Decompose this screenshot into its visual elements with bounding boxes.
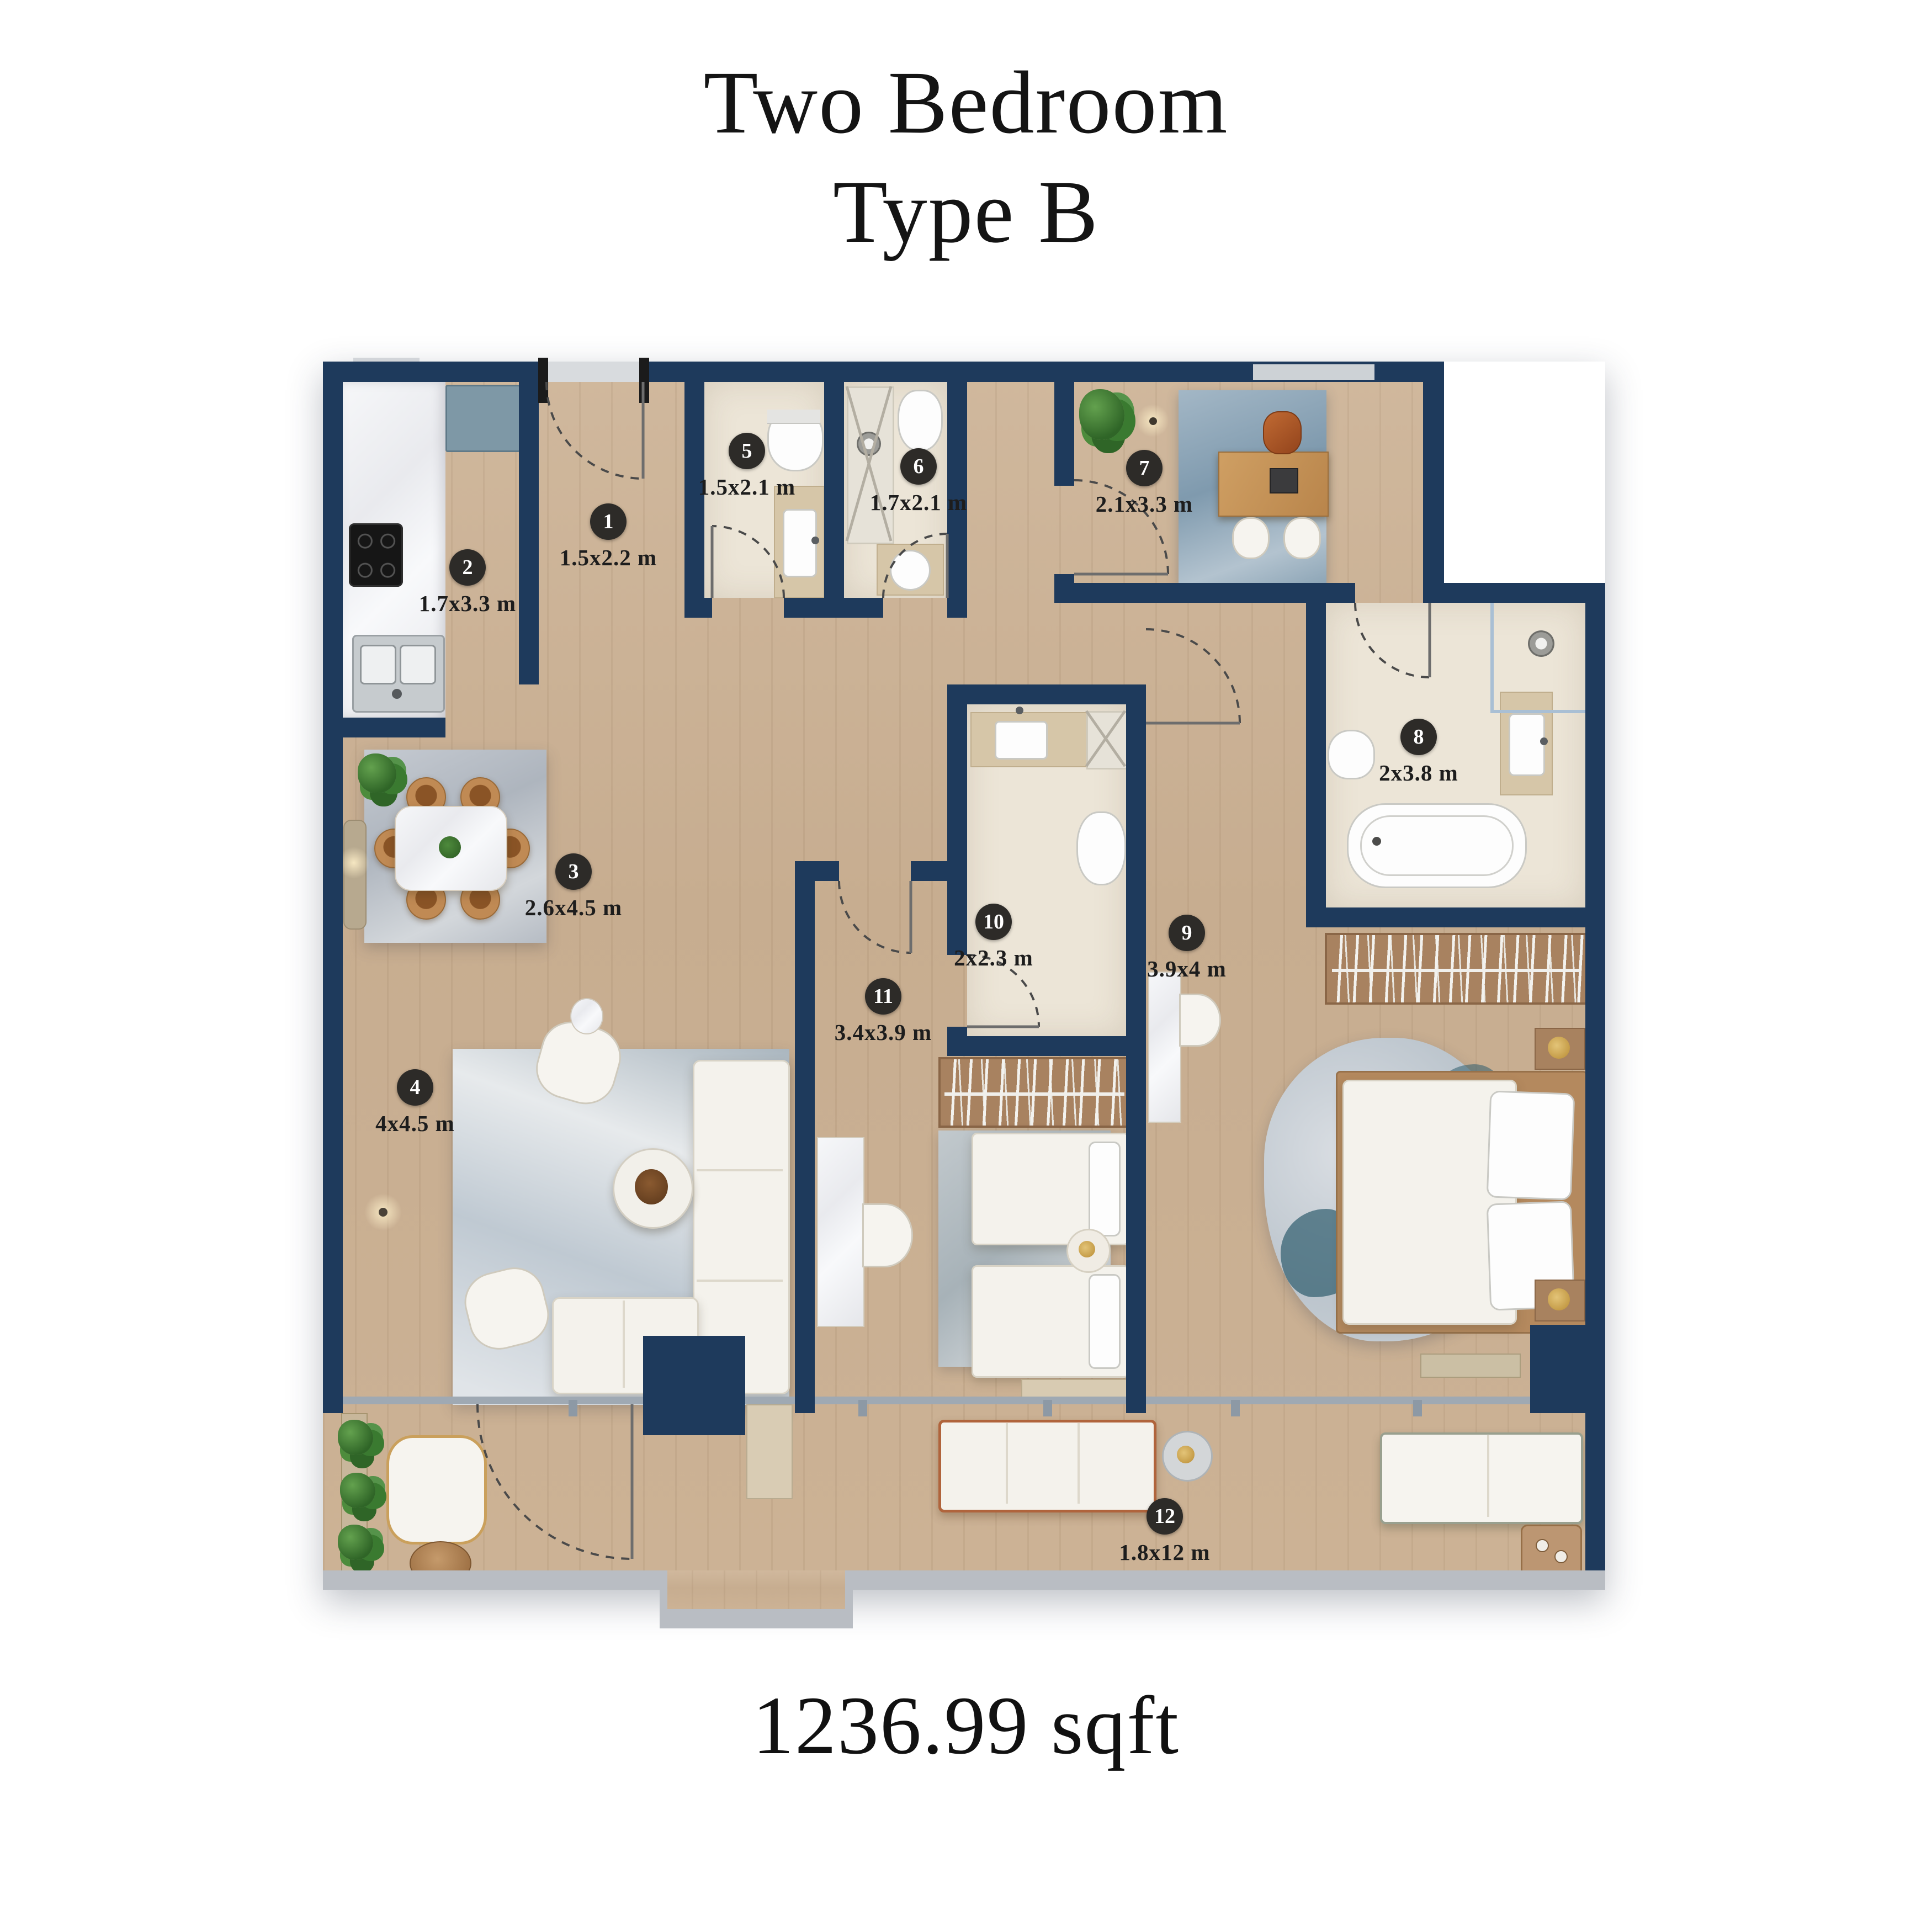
- room-label-8: 82x3.8 m: [1303, 719, 1535, 786]
- pillow: [1487, 1090, 1575, 1200]
- sofa-seam: [697, 1169, 783, 1171]
- room-label-4: 44x4.5 m: [299, 1069, 531, 1137]
- nightstand-tray: [1079, 1241, 1095, 1257]
- room-number: 12: [1147, 1498, 1183, 1535]
- room-dimensions: 3.4x3.9 m: [767, 1019, 999, 1045]
- parapet-joint: [845, 1570, 853, 1609]
- wall-balcony-right: [1585, 1405, 1605, 1570]
- wardrobe-master: [1325, 933, 1588, 1005]
- room-number: 2: [449, 549, 486, 586]
- room-label-12: 121.8x12 m: [1049, 1498, 1281, 1565]
- wall-balcony-block: [643, 1336, 745, 1435]
- bath10-faucet: [1016, 707, 1023, 714]
- wall-study-left: [1054, 574, 1074, 603]
- sofa-seam: [623, 1301, 625, 1388]
- side-table: [570, 998, 603, 1034]
- master-console: [1148, 972, 1181, 1123]
- sofa-seam: [1078, 1423, 1080, 1504]
- balcony-plant: [338, 1420, 373, 1455]
- shower-glass-h: [1490, 710, 1585, 713]
- wall-bath-bottom: [947, 598, 967, 618]
- balcony-parapet-notch: [660, 1609, 853, 1628]
- room-dimensions: 2x2.3 m: [878, 944, 1110, 971]
- window-mullion: [1043, 1400, 1052, 1416]
- room-dimensions: 1.7x3.3 m: [352, 590, 583, 617]
- floorplan-page: Two Bedroom Type B 1236.99 sqft: [0, 0, 1932, 1932]
- pillow: [1089, 1274, 1121, 1369]
- room-number: 1: [590, 503, 627, 540]
- tea-cup: [1554, 1550, 1568, 1563]
- fridge: [445, 385, 521, 452]
- guest-chair: [1283, 517, 1321, 559]
- room-dimensions: 2.6x4.5 m: [458, 894, 689, 921]
- room-number: 8: [1400, 719, 1437, 755]
- balcony-armchair: [386, 1435, 487, 1544]
- balcony-plant: [338, 1525, 373, 1560]
- dining-plant: [358, 753, 396, 793]
- bathtub-drain: [1372, 837, 1381, 846]
- exterior-cutout: [1444, 362, 1605, 583]
- window-mullion: [569, 1400, 577, 1416]
- room-number: 4: [397, 1069, 433, 1106]
- bath5-faucet: [811, 537, 819, 544]
- wall-study-right: [1423, 382, 1444, 603]
- door-frame-stub: [639, 358, 649, 403]
- bath10-basin: [995, 721, 1048, 760]
- toilet: [1076, 811, 1126, 885]
- balcony-window-track: [343, 1397, 1585, 1404]
- shower-head: [1528, 630, 1554, 657]
- desk-chair-leather: [1263, 411, 1302, 454]
- room-label-6: 61.7x2.1 m: [803, 448, 1034, 516]
- window-mullion: [1413, 1400, 1422, 1416]
- room-label-11: 113.4x3.9 m: [767, 978, 999, 1045]
- daybed-seam: [1487, 1435, 1489, 1517]
- wall-bedroom2-top: [795, 861, 839, 881]
- room-label-3: 32.6x4.5 m: [458, 853, 689, 921]
- floor-plan: 11.5x2.2 m21.7x3.3 m32.6x4.5 m44x4.5 m51…: [0, 0, 1932, 1932]
- toilet-tank: [767, 410, 820, 424]
- room-dimensions: 2x3.8 m: [1303, 760, 1535, 786]
- wall-bath-bottom: [684, 598, 712, 618]
- window-mullion: [1231, 1400, 1240, 1416]
- wall-bath8-bottom: [1306, 907, 1605, 927]
- balcony-parapet: [323, 1570, 660, 1590]
- balcony-notch-floor: [660, 1570, 853, 1609]
- room-number: 7: [1126, 450, 1163, 486]
- balcony-plant: [340, 1473, 375, 1508]
- room-label-7: 72.1x3.3 m: [1028, 450, 1260, 517]
- bed-bench: [1420, 1354, 1521, 1378]
- study-plant: [1079, 389, 1124, 440]
- wall-right: [1585, 603, 1605, 1413]
- room-dimensions: 4x4.5 m: [299, 1110, 531, 1137]
- room-dimensions: 2.1x3.3 m: [1028, 491, 1260, 517]
- wall-bath10-top: [947, 684, 1126, 704]
- room-number: 6: [900, 448, 937, 485]
- wall-living-bedroom: [795, 861, 815, 1413]
- bath5-basin: [783, 509, 817, 577]
- toilet: [898, 390, 943, 452]
- balcony-door-leaf: [746, 1404, 793, 1499]
- guest-chair: [1232, 517, 1270, 559]
- door-frame-stub: [538, 358, 548, 403]
- lamp: [1548, 1037, 1570, 1059]
- room-number: 3: [555, 853, 592, 890]
- wall-kitchen-bottom: [323, 718, 445, 737]
- sofa-seam: [1006, 1423, 1008, 1504]
- wall-bath-bottom: [784, 598, 883, 618]
- sink-basin-left: [360, 645, 396, 684]
- coffee-table-tray: [635, 1169, 668, 1204]
- shower-tray: [1086, 711, 1128, 769]
- lamp: [1548, 1288, 1570, 1310]
- room-dimensions: 1.7x2.1 m: [803, 489, 1034, 516]
- side-table-decor: [1177, 1446, 1195, 1463]
- balcony-parapet: [853, 1570, 1605, 1590]
- bath6-basin-round: [890, 550, 931, 591]
- room-number: 9: [1169, 915, 1205, 951]
- room-number: 10: [975, 904, 1012, 940]
- bath8-faucet: [1540, 737, 1548, 745]
- pillow: [1089, 1142, 1121, 1236]
- bed-bench: [1021, 1379, 1139, 1398]
- room-label-10: 102x2.3 m: [878, 904, 1110, 971]
- room-number: 5: [729, 433, 765, 469]
- room-dimensions: 1.8x12 m: [1049, 1539, 1281, 1565]
- wall-bedroom2-top: [911, 861, 947, 881]
- entry-threshold: [546, 362, 643, 382]
- wall-bedrooms-divider: [1126, 684, 1146, 1413]
- wall-corner-block: [1530, 1325, 1585, 1413]
- study-sconce-dot: [1149, 417, 1157, 425]
- laptop: [1270, 468, 1298, 493]
- wall-suite-top: [1054, 583, 1355, 603]
- room-label-2: 21.7x3.3 m: [352, 549, 583, 617]
- parapet-joint: [660, 1570, 667, 1609]
- sink-faucet: [392, 689, 402, 699]
- bedroom2-desk: [817, 1137, 864, 1327]
- daybed: [1380, 1432, 1583, 1524]
- sofa-seam: [697, 1280, 783, 1282]
- window-top: [1253, 364, 1374, 380]
- tea-cup: [1536, 1539, 1549, 1552]
- wardrobe-bedroom2: [938, 1057, 1130, 1128]
- shower-glass-v: [1490, 603, 1494, 713]
- wall-top: [323, 362, 546, 382]
- room-number: 11: [865, 978, 901, 1015]
- wall-suite-top: [1430, 583, 1605, 603]
- floor-lamp-dot: [379, 1208, 388, 1217]
- window-mullion: [858, 1400, 867, 1416]
- sink-basin-right: [400, 645, 436, 684]
- bathtub-inner: [1360, 815, 1514, 876]
- wall-left: [323, 382, 343, 1413]
